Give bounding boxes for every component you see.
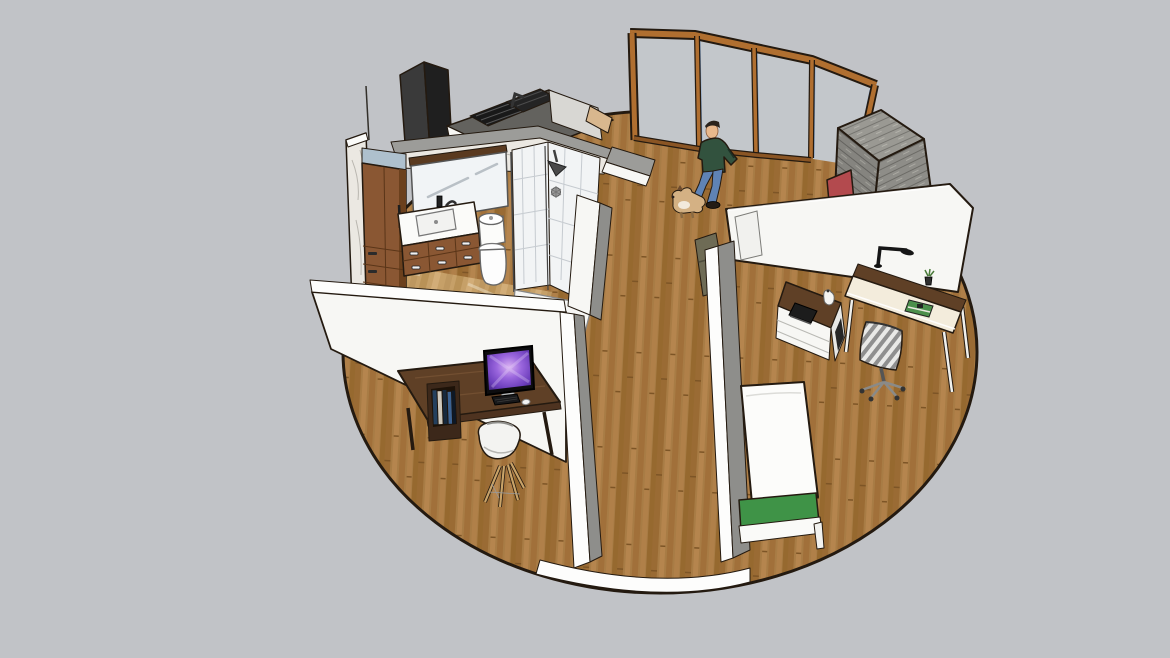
tablet-dark-detail bbox=[917, 304, 923, 308]
man-shoe bbox=[706, 202, 720, 209]
dog-nose bbox=[672, 196, 675, 199]
flush-button bbox=[489, 216, 493, 220]
sink-drain bbox=[434, 220, 438, 224]
vase-neck bbox=[827, 290, 830, 293]
model-viewport[interactable] bbox=[0, 0, 1170, 658]
plant-pot bbox=[925, 277, 932, 285]
books bbox=[432, 390, 456, 425]
shower-wall-left bbox=[512, 142, 550, 290]
toilet[interactable] bbox=[479, 214, 506, 286]
toilet-bowl bbox=[480, 249, 506, 285]
soap-bottle bbox=[437, 196, 442, 207]
mouse bbox=[522, 399, 531, 405]
lamp-base bbox=[874, 264, 882, 268]
glass-panel bbox=[757, 50, 812, 158]
window-mullion bbox=[697, 36, 699, 147]
dog-chest-white bbox=[678, 201, 690, 209]
glass-panel bbox=[634, 36, 698, 146]
window-mullion bbox=[811, 60, 812, 158]
window-mullion bbox=[754, 48, 756, 153]
window-left-post bbox=[632, 33, 635, 140]
